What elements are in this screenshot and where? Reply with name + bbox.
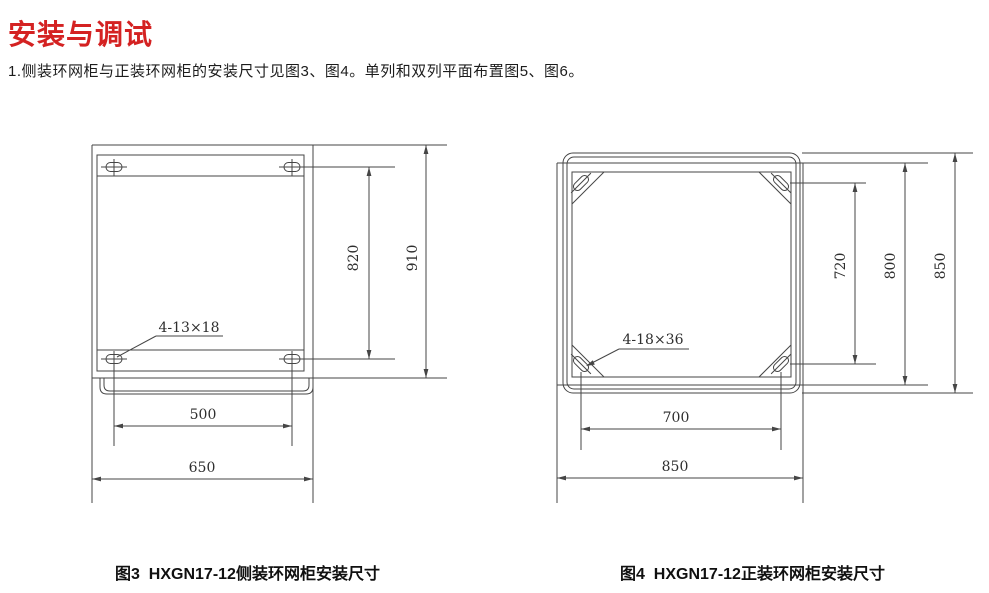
figure3-caption: 图3 HXGN17-12侧装环网柜安装尺寸 [115, 560, 380, 584]
callout-arrowhead [586, 360, 595, 366]
figure4-hole-callout: 4-18×36 [586, 332, 689, 366]
hole-label-4-18x36: 4-18×36 [623, 332, 684, 348]
figure3-base-channel [100, 378, 313, 394]
dim-label-650: 650 [189, 460, 216, 476]
dim-label-720: 720 [833, 253, 849, 280]
dim-label-500: 500 [190, 407, 217, 423]
figure4-drawing: 720 800 850 700 850 [557, 153, 973, 503]
mounting-slot-bottom-left [101, 351, 127, 446]
dimension-800: 800 [883, 163, 907, 385]
dimension-500: 500 [114, 407, 292, 428]
dimension-720: 720 [833, 183, 857, 364]
figure3-cabinet-outline [92, 145, 447, 503]
figure3-hole-callout: 4-13×18 [117, 320, 223, 357]
hole-label-4-13x18: 4-13×18 [159, 320, 220, 336]
dimension-850-horizontal: 850 [557, 459, 803, 480]
dim-label-850-horizontal: 850 [662, 459, 689, 475]
figure4-cabinet-outline [563, 153, 800, 393]
dim-label-800: 800 [883, 253, 899, 280]
figure4-base-plate [557, 163, 928, 503]
mounting-slot-top-right [279, 159, 395, 176]
mounting-slot-top-left [101, 159, 127, 176]
figure3-drawing: 820 910 500 650 4-13×18 [92, 145, 447, 503]
dim-label-850-vertical: 850 [933, 253, 949, 280]
dim-label-910: 910 [405, 245, 421, 272]
dimension-820: 820 [346, 167, 371, 359]
technical-drawings-canvas: 820 910 500 650 4-13×18 [0, 0, 989, 593]
dim-label-820: 820 [346, 245, 362, 272]
figure4-caption: 图4 HXGN17-12正装环网柜安装尺寸 [620, 560, 885, 584]
dim-label-700: 700 [663, 410, 690, 426]
dimension-910: 910 [405, 145, 428, 378]
mounting-slot-top-right [768, 170, 866, 195]
dimension-700: 700 [581, 410, 781, 431]
mounting-slot-bottom-right [279, 351, 395, 446]
dimension-650: 650 [92, 460, 313, 481]
mounting-slot-bottom-right [768, 351, 876, 450]
